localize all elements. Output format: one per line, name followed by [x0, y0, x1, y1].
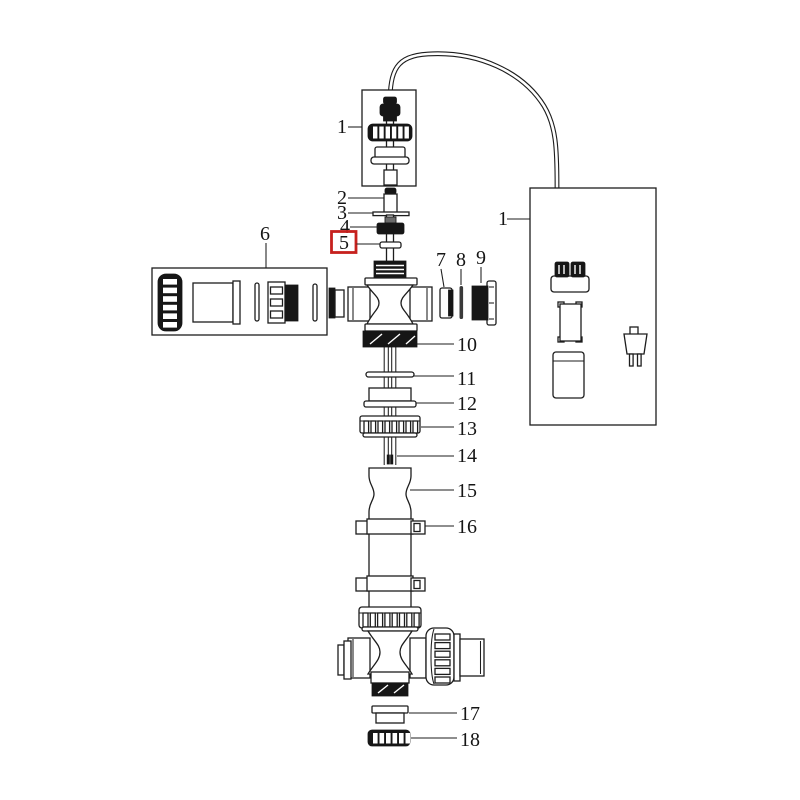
- right-port: [410, 638, 426, 678]
- lamp-base-nub: [384, 170, 397, 185]
- lamp-assembly-box: [152, 268, 327, 335]
- part-label-8: 8: [456, 249, 466, 271]
- glass-sleeve: [193, 281, 240, 324]
- part-9-sensor-plug: [472, 281, 496, 325]
- nut-flange: [454, 634, 460, 681]
- plug-prong: [638, 354, 642, 366]
- lower-cross-body: [338, 628, 484, 696]
- plug-prong: [630, 354, 634, 366]
- oring-2: [313, 284, 317, 321]
- oring-1: [255, 283, 259, 321]
- part-label-12: 12: [457, 393, 477, 415]
- lamp-holder: [268, 282, 298, 323]
- part-label-7: 7: [436, 249, 446, 271]
- knurled-cap: [368, 124, 412, 141]
- part-4-seal-ring: [377, 217, 404, 234]
- part-18-knurled-ring: [368, 730, 410, 746]
- left-port: [348, 287, 370, 321]
- part-13-union-nut: [360, 416, 420, 437]
- part-label-10: 10: [457, 334, 477, 356]
- left-end-plug: [338, 641, 351, 679]
- flange-disc: [371, 147, 409, 164]
- part-7-gland-cap: [440, 288, 453, 318]
- part-label-15: 15: [457, 480, 477, 502]
- part-8-pin: [460, 286, 464, 319]
- part-16-clamp-ring: [356, 519, 425, 534]
- right-port: [410, 287, 432, 321]
- part-label-18: 18: [460, 729, 480, 751]
- part-label-14: 14: [457, 445, 477, 467]
- part-label-1-top: 1: [337, 116, 347, 138]
- part-label-11: 11: [457, 368, 476, 390]
- part-label-1-right: 1: [498, 208, 508, 230]
- part-10-threaded-collar: [363, 331, 417, 347]
- part-5-oring: [380, 242, 401, 248]
- part-2-pin: [384, 188, 397, 214]
- part-label-13: 13: [457, 418, 477, 440]
- upper-cross-body: [348, 261, 432, 331]
- part-label-5: 5: [339, 232, 349, 254]
- part-17-plug-cap: [372, 706, 408, 723]
- exploded-parts-diagram: 1 1: [0, 0, 800, 800]
- ballast-module: [558, 302, 582, 342]
- part-label-6: 6: [260, 223, 270, 245]
- bottom-threaded-stub: [372, 683, 408, 696]
- ballast-detail-box: [530, 188, 656, 425]
- part-label-17: 17: [460, 703, 480, 725]
- lamp-cap-detail-box: [362, 90, 416, 186]
- ballast-canister: [553, 352, 584, 398]
- leader-line-7: [441, 269, 444, 287]
- lamp-pin: [391, 455, 393, 464]
- ribbed-end-cap: [158, 274, 182, 331]
- lamp-pin: [387, 455, 389, 464]
- outlet-pipe: [460, 639, 484, 676]
- sleeve-end-plug: [329, 288, 344, 318]
- part-label-16: 16: [457, 516, 477, 538]
- part-11-washer: [366, 372, 414, 377]
- right-knurled-nut: [426, 628, 454, 685]
- threaded-collar: [374, 261, 406, 278]
- part-label-9: 9: [476, 247, 486, 269]
- lower-union-nut: [359, 607, 421, 631]
- diagram-canvas: 1 1: [0, 0, 800, 800]
- part-12-bushing: [364, 388, 416, 407]
- lower-clamp-ring: [356, 576, 425, 591]
